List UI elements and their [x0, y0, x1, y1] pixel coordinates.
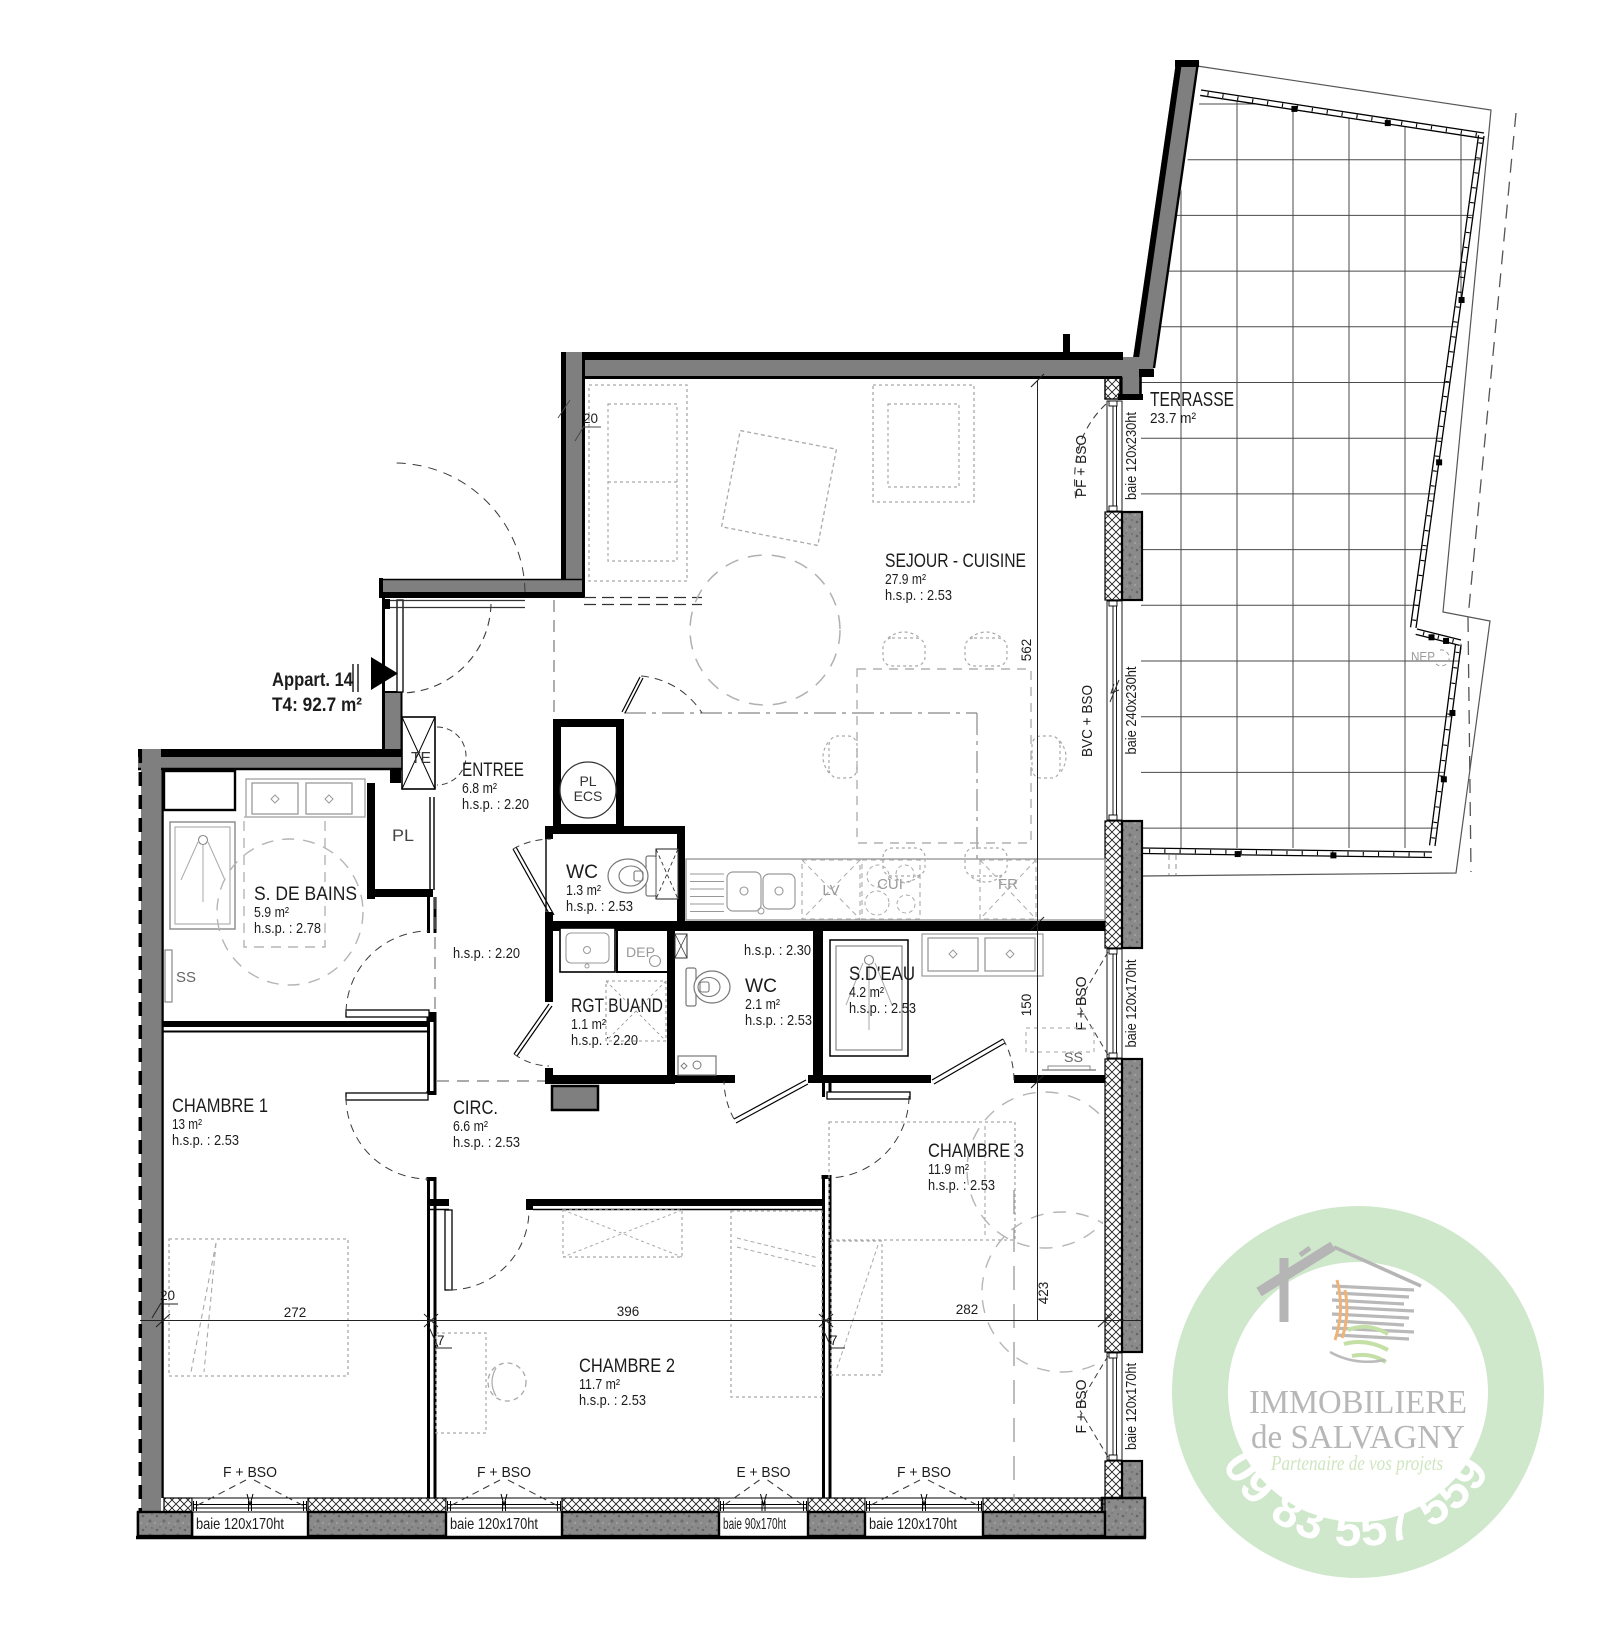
svg-text:SS: SS: [176, 969, 196, 986]
svg-text:baie 90x170ht: baie 90x170ht: [723, 1516, 786, 1533]
svg-text:562: 562: [1019, 639, 1034, 662]
svg-text:CHAMBRE 2: CHAMBRE 2: [579, 1356, 675, 1377]
svg-text:ECS: ECS: [574, 788, 603, 804]
svg-text:TERRASSE: TERRASSE: [1150, 389, 1234, 411]
svg-text:h.s.p. : 2.53: h.s.p. : 2.53: [885, 588, 952, 604]
svg-text:2.1 m²: 2.1 m²: [745, 997, 780, 1013]
svg-text:F + BSO: F + BSO: [897, 1464, 951, 1481]
svg-text:baie 120x170ht: baie 120x170ht: [869, 1516, 957, 1533]
svg-text:272: 272: [284, 1305, 307, 1320]
svg-text:h.s.p. : 2.20: h.s.p. : 2.20: [462, 797, 529, 813]
svg-text:20: 20: [583, 411, 598, 426]
svg-text:1.1 m²: 1.1 m²: [571, 1017, 606, 1033]
svg-text:h.s.p. : 2.53: h.s.p. : 2.53: [566, 899, 633, 915]
svg-text:SEJOUR - CUISINE: SEJOUR - CUISINE: [885, 551, 1026, 572]
svg-text:F + BSO: F + BSO: [223, 1464, 277, 1481]
svg-text:150: 150: [1019, 994, 1034, 1017]
svg-text:RGT BUAND: RGT BUAND: [571, 996, 663, 1017]
svg-text:WC: WC: [566, 862, 598, 883]
svg-text:WC: WC: [745, 976, 777, 997]
svg-text:NEP: NEP: [1411, 649, 1435, 664]
svg-text:CUI: CUI: [877, 876, 903, 893]
svg-text:S.D'EAU: S.D'EAU: [849, 964, 915, 985]
svg-text:CHAMBRE 1: CHAMBRE 1: [172, 1096, 268, 1117]
svg-text:23.7 m²: 23.7 m²: [1150, 410, 1196, 427]
svg-text:E + BSO: E + BSO: [737, 1464, 791, 1481]
svg-text:baie 120x170ht: baie 120x170ht: [1123, 959, 1140, 1048]
svg-text:baie 240x230ht: baie 240x230ht: [1123, 666, 1140, 755]
svg-text:5.9 m²: 5.9 m²: [254, 905, 289, 921]
svg-text:PL: PL: [392, 826, 414, 845]
svg-text:282: 282: [956, 1302, 979, 1317]
svg-text:CIRC.: CIRC.: [453, 1098, 498, 1119]
svg-text:LV: LV: [822, 882, 839, 899]
svg-text:h.s.p. : 2.53: h.s.p. : 2.53: [928, 1178, 995, 1194]
svg-text:7: 7: [437, 1333, 445, 1348]
svg-text:T4: 92.7 m²: T4: 92.7 m²: [272, 695, 362, 716]
svg-text:11.9 m²: 11.9 m²: [928, 1162, 969, 1178]
svg-text:SS: SS: [1064, 1049, 1083, 1065]
svg-text:11.7 m²: 11.7 m²: [579, 1377, 620, 1393]
svg-text:BVC + BSO: BVC + BSO: [1079, 685, 1096, 757]
svg-text:h.s.p. : 2.53: h.s.p. : 2.53: [172, 1133, 239, 1149]
svg-text:S. DE BAINS: S. DE BAINS: [254, 884, 357, 905]
svg-text:FR: FR: [998, 876, 1018, 893]
svg-text:4.2 m²: 4.2 m²: [849, 985, 884, 1001]
svg-text:TE: TE: [411, 750, 431, 767]
svg-text:PL: PL: [579, 773, 596, 789]
svg-text:ENTREE: ENTREE: [462, 760, 524, 781]
svg-text:Appart. 14: Appart. 14: [272, 670, 353, 691]
svg-text:CHAMBRE 3: CHAMBRE 3: [928, 1141, 1024, 1162]
svg-text:F + BSO: F + BSO: [1073, 1380, 1090, 1434]
svg-text:h.s.p. : 2.20: h.s.p. : 2.20: [571, 1033, 638, 1049]
svg-text:396: 396: [617, 1304, 640, 1319]
svg-text:baie 120x170ht: baie 120x170ht: [196, 1516, 284, 1533]
svg-text:7: 7: [830, 1333, 838, 1348]
svg-text:6.6 m²: 6.6 m²: [453, 1119, 488, 1135]
svg-text:PF + BSO: PF + BSO: [1073, 435, 1090, 497]
svg-text:1.3 m²: 1.3 m²: [566, 883, 601, 899]
svg-text:423: 423: [1036, 1282, 1051, 1305]
svg-text:h.s.p. : 2.20: h.s.p. : 2.20: [453, 946, 520, 962]
svg-text:baie 120x230ht: baie 120x230ht: [1123, 411, 1140, 500]
svg-text:27.9 m²: 27.9 m²: [885, 572, 926, 588]
svg-text:baie 120x170ht: baie 120x170ht: [450, 1516, 538, 1533]
svg-text:13 m²: 13 m²: [172, 1117, 202, 1133]
svg-text:6.8 m²: 6.8 m²: [462, 781, 497, 797]
svg-text:h.s.p. : 2.53: h.s.p. : 2.53: [849, 1001, 916, 1017]
svg-text:F + BSO: F + BSO: [1073, 977, 1090, 1031]
svg-text:baie 120x170ht: baie 120x170ht: [1123, 1362, 1140, 1450]
svg-text:h.s.p. : 2.30: h.s.p. : 2.30: [744, 943, 811, 959]
svg-text:20: 20: [160, 1288, 175, 1303]
svg-text:IMMOBILIERE: IMMOBILIERE: [1249, 1384, 1467, 1421]
svg-text:Partenaire de vos projets: Partenaire de vos projets: [1270, 1451, 1443, 1475]
svg-text:F + BSO: F + BSO: [477, 1464, 531, 1481]
svg-text:h.s.p. : 2.53: h.s.p. : 2.53: [453, 1135, 520, 1151]
svg-text:h.s.p. : 2.53: h.s.p. : 2.53: [579, 1393, 646, 1409]
svg-text:h.s.p. : 2.78: h.s.p. : 2.78: [254, 921, 321, 937]
svg-text:h.s.p. : 2.53: h.s.p. : 2.53: [745, 1013, 812, 1029]
